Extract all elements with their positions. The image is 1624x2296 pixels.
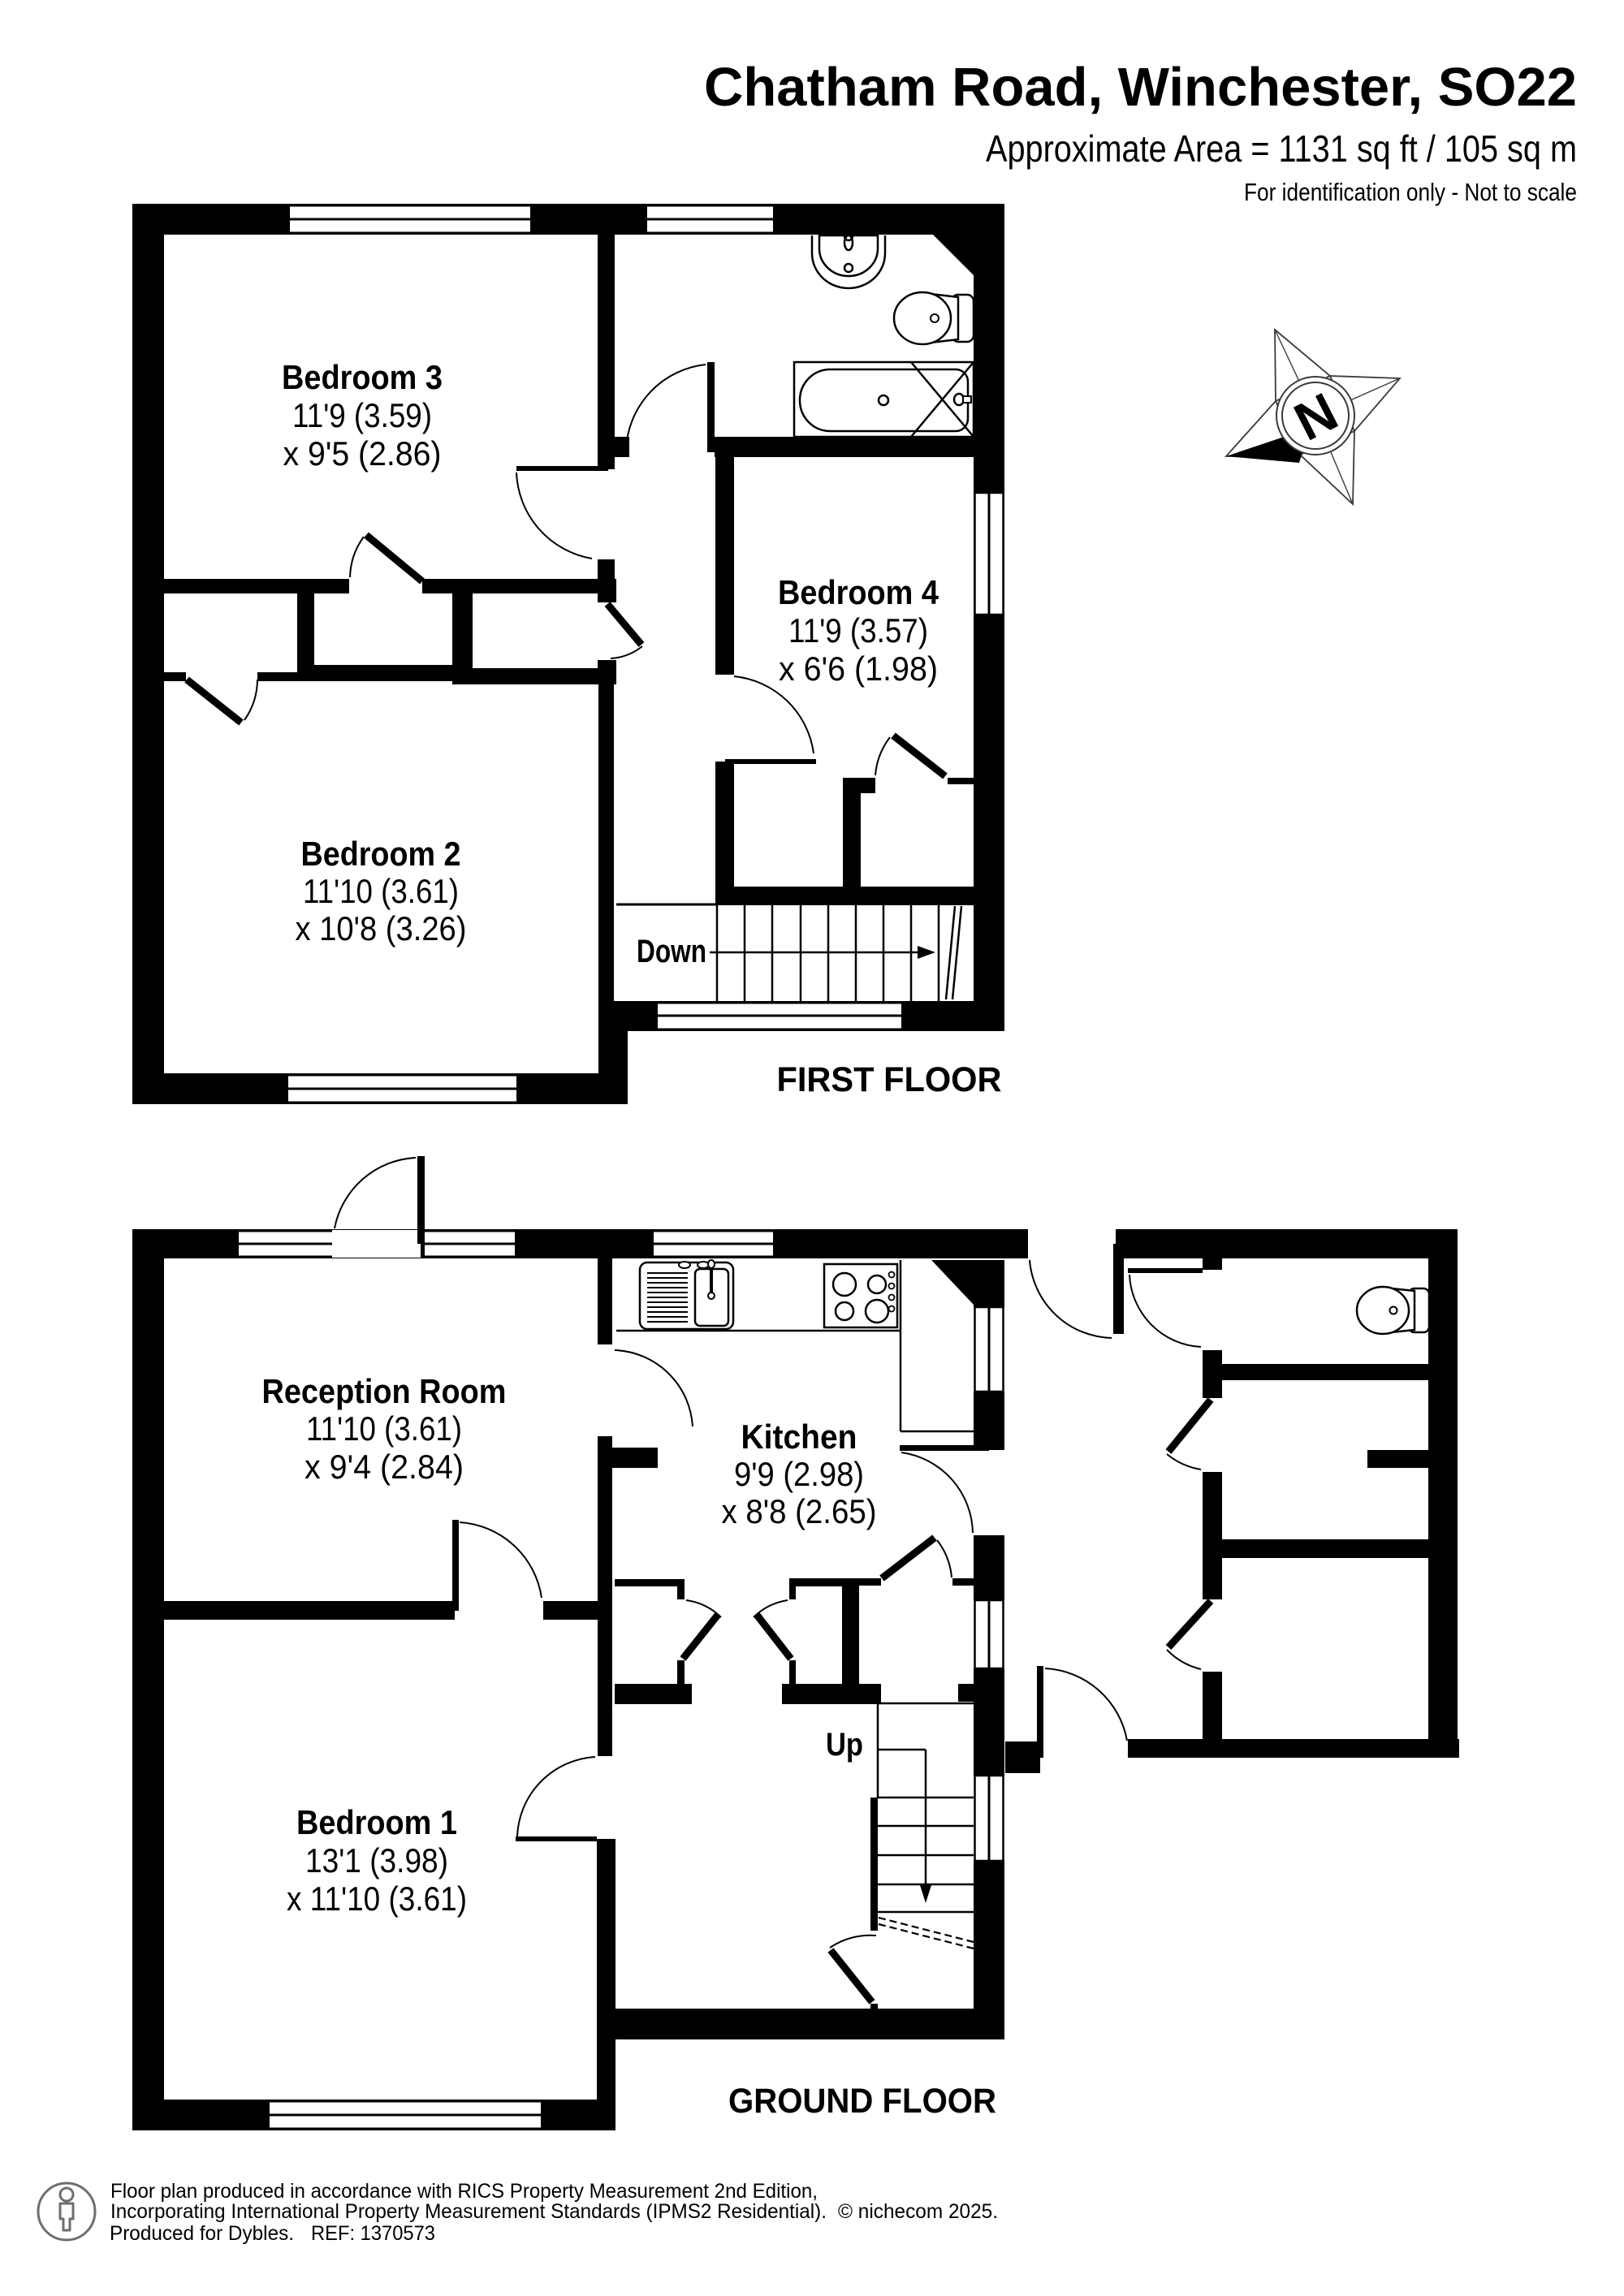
svg-text:GROUND FLOOR: GROUND FLOOR xyxy=(728,2082,996,2121)
svg-text:11'9 (3.59): 11'9 (3.59) xyxy=(292,396,432,434)
svg-text:9'9 (2.98): 9'9 (2.98) xyxy=(734,1455,864,1493)
svg-text:Chatham Road, Winchester, SO22: Chatham Road, Winchester, SO22 xyxy=(704,57,1577,118)
svg-text:11'10 (3.61): 11'10 (3.61) xyxy=(303,872,459,910)
svg-text:x 11'10 (3.61): x 11'10 (3.61) xyxy=(287,1880,467,1918)
svg-text:x 10'8 (3.26): x 10'8 (3.26) xyxy=(296,909,467,947)
svg-text:Bedroom 1: Bedroom 1 xyxy=(296,1803,457,1841)
svg-text:Floor plan produced in accorda: Floor plan produced in accordance with R… xyxy=(110,2180,818,2203)
svg-text:For identification only - Not: For identification only - Not to scale xyxy=(1244,178,1577,206)
svg-text:Bedroom 3: Bedroom 3 xyxy=(282,358,443,396)
svg-text:Incorporating International Pr: Incorporating International Property Mea… xyxy=(110,2200,827,2223)
svg-text:11'9 (3.57): 11'9 (3.57) xyxy=(788,611,928,650)
svg-text:REF: 1370573: REF: 1370573 xyxy=(311,2222,435,2245)
svg-text:Approximate Area = 1131 sq ft: Approximate Area = 1131 sq ft / 105 sq m xyxy=(986,127,1577,170)
svg-text:13'1 (3.98): 13'1 (3.98) xyxy=(305,1841,448,1880)
svg-text:FIRST FLOOR: FIRST FLOOR xyxy=(777,1060,1002,1099)
svg-text:Kitchen: Kitchen xyxy=(741,1418,857,1456)
svg-text:11'10 (3.61): 11'10 (3.61) xyxy=(306,1409,462,1448)
svg-text:Down: Down xyxy=(637,934,706,969)
svg-text:Produced for Dybles.: Produced for Dybles. xyxy=(110,2222,294,2245)
svg-text:© nichecom 2025.: © nichecom 2025. xyxy=(838,2200,998,2223)
svg-text:x 9'4 (2.84): x 9'4 (2.84) xyxy=(304,1448,464,1486)
svg-text:Reception Room: Reception Room xyxy=(262,1372,507,1410)
svg-text:Bedroom 4: Bedroom 4 xyxy=(778,573,939,611)
svg-text:Up: Up xyxy=(826,1727,863,1763)
svg-text:Bedroom 2: Bedroom 2 xyxy=(301,835,461,873)
svg-text:x 8'8 (2.65): x 8'8 (2.65) xyxy=(722,1492,877,1530)
svg-text:x 6'6 (1.98): x 6'6 (1.98) xyxy=(779,650,938,688)
svg-text:x 9'5 (2.86): x 9'5 (2.86) xyxy=(283,434,442,473)
